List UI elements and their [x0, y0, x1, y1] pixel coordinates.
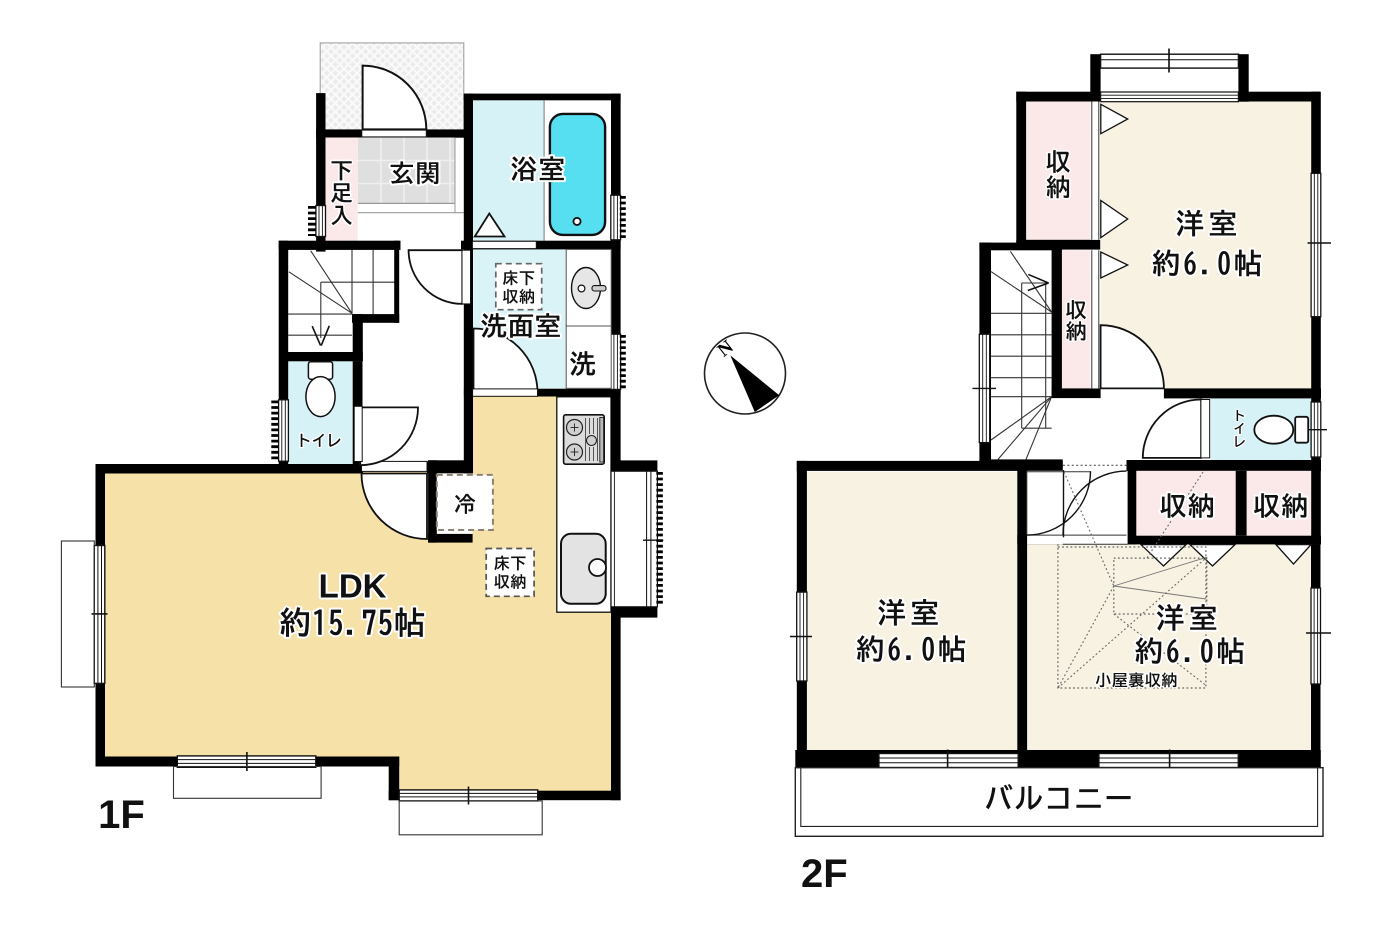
svg-text:2F: 2F — [801, 852, 848, 896]
svg-text:LDK: LDK — [319, 567, 387, 604]
svg-text:1F: 1F — [98, 793, 145, 837]
